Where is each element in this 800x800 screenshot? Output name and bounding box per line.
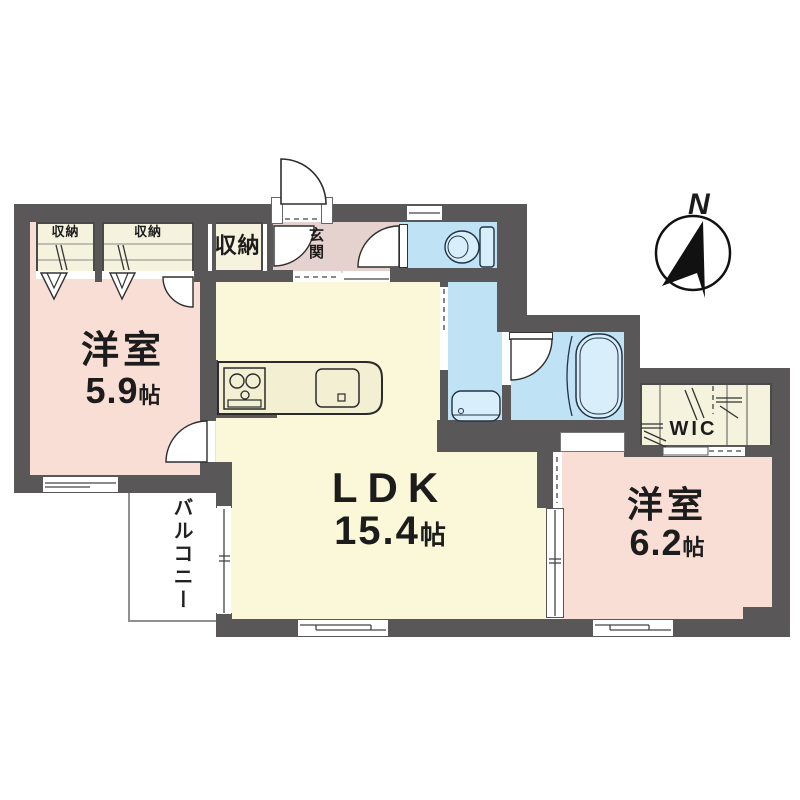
north-arrow-icon [656,216,730,298]
wall-corner-balcony [200,462,232,493]
wall-bath-top [511,315,624,332]
bedroom2-label: 洋室 6.2帖 [562,486,772,562]
closet-1-track [36,271,95,279]
wall-right [772,368,790,637]
bedroom1-doorway [201,421,215,462]
closet-hall-label: 収納 [212,234,263,257]
wall-wic-top [640,368,790,383]
bedroom2-south-window [593,620,673,636]
room-washroom [448,282,502,423]
wall-hall-row-east [390,268,511,282]
closet-hall-frame-right [263,224,267,271]
bedroom2-sliding-door [553,455,562,505]
room-entrance [273,222,400,273]
room-toilet [400,222,497,268]
bedroom1-label: 洋室 5.9帖 [30,332,216,410]
bathroom-door-leaf [509,332,553,340]
bedroom1-south-window [43,477,118,492]
wall-below-wash [437,436,560,452]
entrance-doorway [277,204,327,222]
floor-plan: 洋室 5.9帖 LDK 15.4帖 洋室 6.2帖 収納 収納 収納 玄関 WI… [0,0,800,800]
bedroom2-north-opening [560,432,625,452]
wall-bedroom2-west [537,452,553,508]
wic-label: WIC [640,419,747,440]
wall-bath-east-step [624,315,640,385]
bedroom1-north-doorway [163,271,193,282]
balcony-label: バルコニー [167,497,196,622]
north-label: N [688,188,710,222]
balcony-sliding-window [217,506,231,614]
ldk-label: LDK 15.4帖 [270,466,510,552]
room-ldk-main [216,282,440,619]
entrance-label: 玄関 [305,227,326,273]
entrance-frame-right [321,197,333,224]
wic-sliding-door [663,447,745,456]
room-bathroom [511,332,624,420]
ldk-south-window [298,620,388,636]
washroom-sliding-door [440,287,448,370]
toilet-window [407,206,442,220]
entrance-door-swing [281,159,326,204]
toilet-door-leaf [399,224,408,268]
wall-post-closets [95,222,102,282]
entrance-frame-left [271,197,283,224]
closet-2-label: 収納 [102,225,194,239]
wall-hall-row-west [216,270,293,282]
entrance-step-opening [343,271,390,282]
wall-left [14,222,30,493]
closet-1-label: 収納 [36,225,95,239]
